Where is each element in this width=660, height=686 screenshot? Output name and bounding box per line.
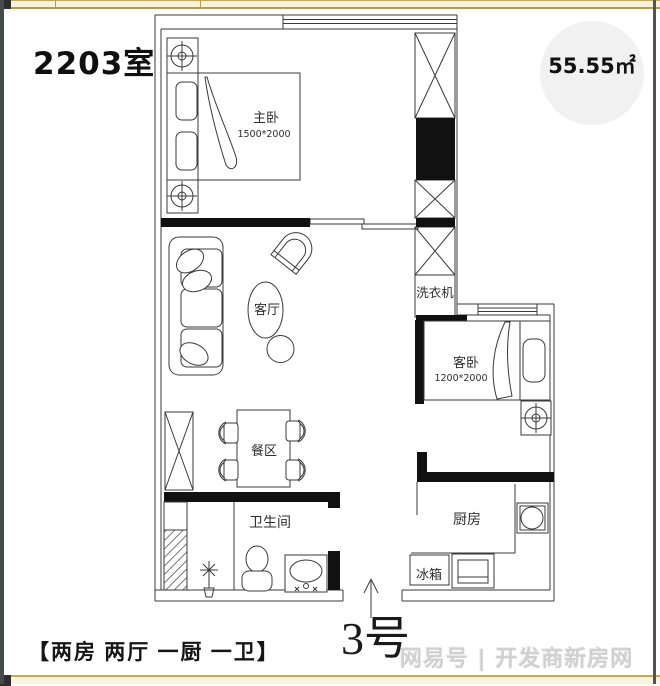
living-room [169, 226, 318, 375]
living-room-label: 客厅 [254, 302, 280, 318]
pillow [523, 339, 545, 382]
plant [200, 561, 218, 597]
kitchen-label: 厨房 [453, 512, 481, 528]
toilet-bowl [246, 546, 268, 572]
bathroom-label: 卫生间 [249, 515, 291, 531]
top-strip-divider-2 [200, 0, 201, 9]
bottom-page-strip [0, 675, 660, 684]
washing-machine-label: 洗衣机 [416, 285, 454, 300]
master-bed [198, 73, 300, 180]
armchair [271, 226, 318, 274]
master-bedroom [167, 38, 300, 213]
watermark: 网易号 | 开发商新房网 [400, 641, 633, 673]
layout-description: 【两房 两厅 一厨 一卫】 [28, 636, 280, 666]
dining-area-label: 餐区 [251, 443, 277, 459]
kitchen-sink [517, 503, 548, 533]
dining-chair [219, 459, 238, 481]
master-bedroom-label: 主卧 [253, 111, 279, 126]
wash-basin [285, 555, 327, 592]
dining-chair [286, 420, 305, 442]
window-master [283, 15, 457, 29]
guest-bedroom-label: 客卧 [453, 355, 479, 371]
guest-bedroom-size: 1200*2000 [434, 373, 487, 384]
dining-chair [286, 459, 305, 481]
stove [452, 554, 494, 588]
pillow [176, 132, 197, 170]
pillow [176, 82, 197, 120]
fridge-label: 冰箱 [416, 567, 442, 583]
top-page-strip [0, 0, 660, 9]
toilet-tank [242, 571, 272, 591]
sliding-door [310, 219, 418, 229]
dining-cabinet [165, 412, 193, 490]
window-guest [457, 304, 554, 315]
dining-chair [219, 422, 238, 444]
left-page-border [0, 0, 4, 684]
floorplan-page: 2203室 55.55㎡ [0, 0, 660, 684]
shaft-hatch [164, 530, 187, 590]
right-page-border [653, 0, 656, 684]
floorplan-drawing: 主卧 1500*2000 客厅 客卧 1200*2000 餐区 卫生间 厨房 冰… [0, 0, 660, 684]
sofa [169, 237, 223, 375]
master-bedroom-size: 1500*2000 [237, 129, 290, 140]
bathroom [164, 502, 327, 597]
stool [267, 336, 294, 363]
top-strip-divider [55, 0, 56, 9]
